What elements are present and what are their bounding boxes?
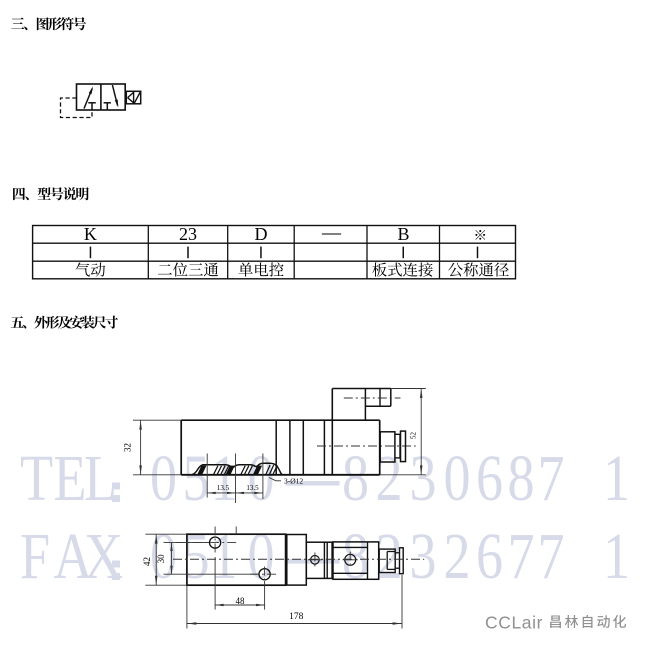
svg-text:1: 1 xyxy=(211,442,238,515)
svg-text:3: 3 xyxy=(410,442,437,515)
svg-text:13.5: 13.5 xyxy=(246,484,259,492)
svg-text:178: 178 xyxy=(289,612,304,622)
svg-text:32: 32 xyxy=(123,443,133,452)
svg-text:30: 30 xyxy=(156,554,166,564)
svg-text:B: B xyxy=(397,224,409,244)
svg-text:48: 48 xyxy=(236,596,246,606)
svg-text:13.5: 13.5 xyxy=(217,484,230,492)
svg-text:—: — xyxy=(321,223,342,244)
svg-text:6: 6 xyxy=(476,520,503,593)
svg-text:3-Ø12: 3-Ø12 xyxy=(284,477,303,486)
svg-text:T: T xyxy=(20,442,53,515)
svg-text:CCLair: CCLair xyxy=(485,612,543,632)
svg-text:8: 8 xyxy=(342,442,369,515)
svg-text:2: 2 xyxy=(444,520,471,593)
svg-text:1: 1 xyxy=(603,520,630,593)
svg-text:X: X xyxy=(84,520,123,593)
svg-text:7: 7 xyxy=(538,520,565,593)
svg-text:52: 52 xyxy=(409,432,417,440)
svg-text:0: 0 xyxy=(248,520,275,593)
svg-text:42: 42 xyxy=(142,557,152,566)
svg-text:7: 7 xyxy=(508,520,535,593)
svg-text:7: 7 xyxy=(538,442,565,515)
svg-text:8: 8 xyxy=(508,442,535,515)
svg-text:L: L xyxy=(84,442,117,515)
svg-text:6: 6 xyxy=(476,442,503,515)
svg-text:E: E xyxy=(54,442,87,515)
svg-text:3: 3 xyxy=(410,520,437,593)
svg-text:5: 5 xyxy=(183,442,210,515)
svg-text:23: 23 xyxy=(179,224,197,244)
svg-text:D: D xyxy=(255,224,268,244)
svg-text:K: K xyxy=(84,224,97,244)
svg-text:0: 0 xyxy=(444,442,471,515)
svg-text:0: 0 xyxy=(150,442,177,515)
svg-text:1: 1 xyxy=(603,442,630,515)
svg-text:F: F xyxy=(20,520,50,593)
